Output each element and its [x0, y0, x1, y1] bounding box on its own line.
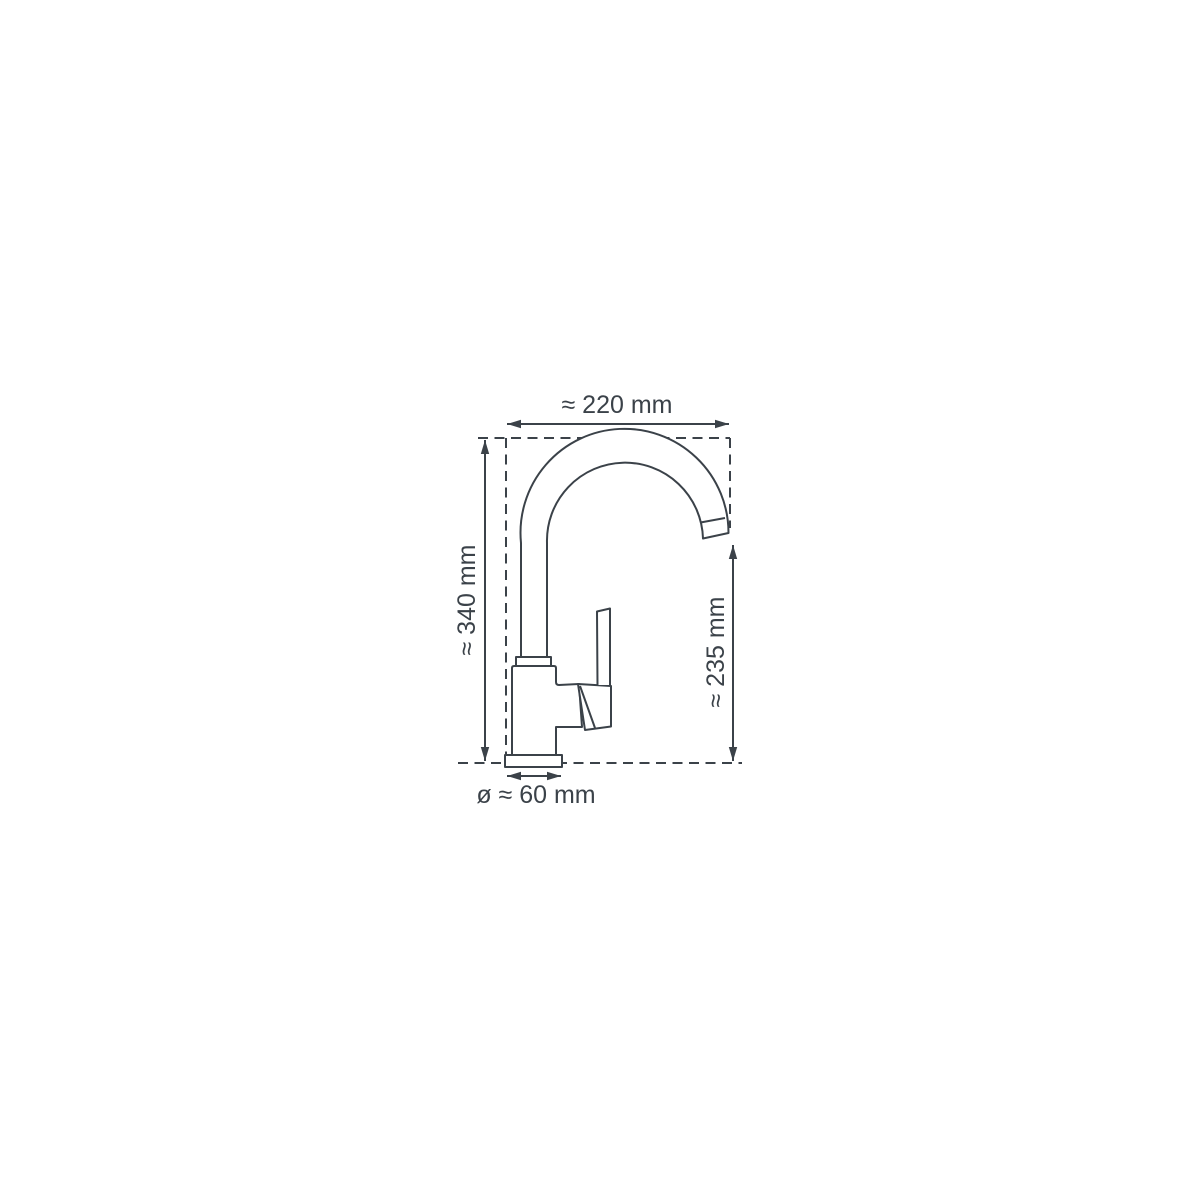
dimension-spout-height: ≈ 235 mm [702, 545, 733, 761]
dimension-width: ≈ 220 mm [507, 391, 729, 424]
drawing-canvas: ≈ 220 mm ≈ 340 mm ≈ 235 mm ø ≈ 60 mm [0, 0, 1200, 1200]
faucet-spout [521, 429, 729, 658]
handle-lever [597, 609, 610, 686]
dimension-base-diameter-label: ø ≈ 60 mm [476, 781, 595, 809]
dimension-height-label: ≈ 340 mm [453, 545, 481, 656]
dimension-width-label: ≈ 220 mm [562, 391, 673, 419]
faucet-dimension-diagram: ≈ 220 mm ≈ 340 mm ≈ 235 mm ø ≈ 60 mm [0, 0, 1200, 1200]
dimension-spout-height-label: ≈ 235 mm [702, 597, 730, 708]
faucet-base-flange [505, 755, 562, 767]
faucet-collar [516, 657, 551, 666]
dimension-height: ≈ 340 mm [453, 440, 485, 761]
handle-base [578, 684, 611, 730]
faucet-body [512, 666, 582, 755]
dimension-base-diameter: ø ≈ 60 mm [476, 776, 595, 809]
faucet-outline [505, 429, 729, 767]
